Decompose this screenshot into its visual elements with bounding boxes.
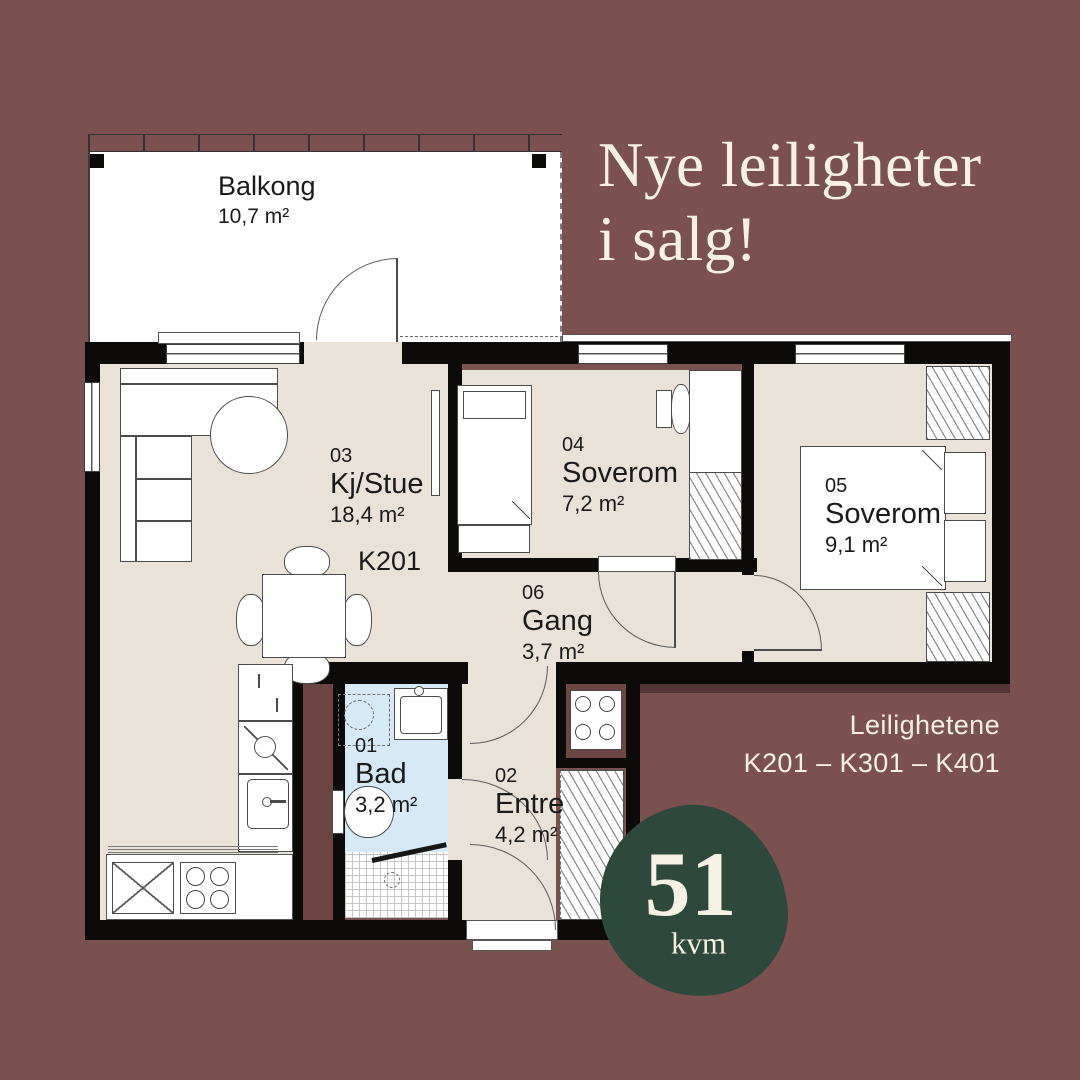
wardrobe [926, 592, 990, 662]
door-leaf [754, 649, 822, 651]
bed-foot [458, 525, 530, 553]
door-threshold [598, 556, 676, 572]
corner-post [90, 154, 104, 168]
duvet-fold [512, 501, 530, 519]
sofa [136, 436, 192, 562]
cabinet-mark [276, 698, 278, 712]
wall [742, 651, 754, 664]
wall-shadow [640, 684, 1010, 693]
door-opening [448, 779, 462, 860]
burner [186, 890, 205, 909]
wall [448, 860, 462, 920]
tv [431, 390, 440, 496]
wardrobe-hatch [690, 472, 741, 559]
room-name: Soverom [825, 498, 941, 531]
counter-divider [238, 720, 293, 722]
faucet-handle [270, 800, 286, 803]
wall [742, 342, 754, 575]
door-leaf [674, 572, 676, 648]
room-name: Gang [522, 605, 593, 638]
room-area: 9,1 m² [825, 531, 941, 558]
room-area: 4,2 m² [495, 821, 564, 848]
wall [556, 684, 566, 764]
headline-line2: i salg! [598, 202, 982, 276]
room-area: 3,7 m² [522, 638, 593, 665]
apartments-list: Leilighetene K201 – K301 – K401 [744, 706, 1000, 782]
toilet-tank [332, 790, 344, 834]
room-number: 02 [495, 764, 564, 788]
property-line [400, 336, 558, 337]
burner [210, 867, 229, 886]
wall [992, 342, 1010, 684]
coffee-table [210, 396, 288, 474]
room-area: 18,4 m² [330, 501, 424, 528]
wall [556, 758, 626, 768]
window [578, 344, 668, 364]
entry-step [472, 940, 552, 951]
room-name: Soverom [562, 457, 678, 490]
headline-line1: Nye leiligheter [598, 128, 982, 202]
room-name: Bad [355, 758, 417, 791]
corner-post [532, 154, 546, 168]
pillow [944, 520, 986, 582]
room-label-bathroom: 01 Bad 3,2 m² [355, 734, 417, 818]
room-label-bedroom-04: 04 Soverom 7,2 m² [562, 433, 678, 517]
sofa [120, 368, 278, 384]
window [84, 382, 100, 472]
desk-chair [671, 384, 691, 434]
bathroom-sink-basin [400, 696, 442, 734]
sofa [120, 436, 136, 562]
wall [302, 662, 1010, 684]
stove [180, 862, 236, 914]
room-label-living: 03 Kj/Stue 18,4 m² [330, 444, 424, 528]
room-area: 7,2 m² [562, 490, 678, 517]
burner [599, 724, 615, 740]
counter-divider [238, 773, 293, 775]
apartments-list-codes: K201 – K301 – K401 [744, 744, 1000, 782]
room-label-hall: 06 Gang 3,7 m² [522, 581, 593, 665]
burner [210, 890, 229, 909]
fridge [112, 862, 174, 914]
wall [676, 558, 757, 572]
poster: Balkong 10,7 m² 03 Kj/Stue 18,4 m² K201 … [0, 0, 1080, 1080]
burner [186, 867, 205, 886]
room-label-entry: 02 Entre 4,2 m² [495, 764, 564, 848]
sofa-cushion-line [136, 478, 192, 480]
room-number: 01 [355, 734, 417, 758]
room-number: 03 [330, 444, 424, 468]
area-badge-unit: kvm [671, 927, 726, 961]
room-area: 3,2 m² [355, 791, 417, 818]
window [795, 344, 905, 364]
window-sill [158, 332, 300, 344]
pillow [463, 391, 526, 419]
burner [599, 696, 615, 712]
stove [570, 690, 622, 750]
wall [448, 684, 462, 779]
burner [575, 696, 591, 712]
room-number: 04 [562, 433, 678, 457]
counter-edge-lines [108, 844, 278, 853]
duvet-fold [922, 450, 942, 470]
balcony-railing [88, 134, 562, 152]
shaft [303, 684, 333, 920]
burner [575, 724, 591, 740]
window [166, 344, 300, 364]
room-number: 06 [522, 581, 593, 605]
cabinet-mark [258, 674, 260, 688]
duvet-fold [922, 566, 942, 586]
sofa-cushion-line [136, 520, 192, 522]
pillow [944, 452, 986, 514]
dishwasher-knob [254, 736, 276, 758]
washing-machine-drum [344, 700, 374, 730]
room-name: Kj/Stue [330, 468, 424, 501]
door-opening [742, 575, 754, 651]
wall [448, 558, 598, 572]
apartment-code-label: K201 [358, 546, 421, 577]
area-badge-value: 51 [645, 841, 737, 927]
room-area: 10,7 m² [218, 203, 316, 230]
wardrobe [926, 366, 990, 440]
headline: Nye leiligheter i salg! [598, 128, 982, 276]
chair [342, 594, 372, 646]
room-label-bedroom-05: 05 Soverom 9,1 m² [825, 474, 941, 558]
dining-table [262, 574, 346, 658]
room-name: Entre [495, 788, 564, 821]
apartments-list-title: Leilighetene [744, 706, 1000, 744]
eave-line [562, 334, 1012, 342]
door-leaf [396, 258, 398, 342]
room-number: 05 [825, 474, 941, 498]
room-label-balcony: Balkong 10,7 m² [218, 170, 316, 230]
faucet [414, 686, 424, 696]
desk [656, 390, 672, 428]
balcony-door-opening [304, 342, 402, 364]
shower-drain [384, 872, 400, 888]
room-name: Balkong [218, 170, 316, 203]
wall [293, 664, 303, 930]
